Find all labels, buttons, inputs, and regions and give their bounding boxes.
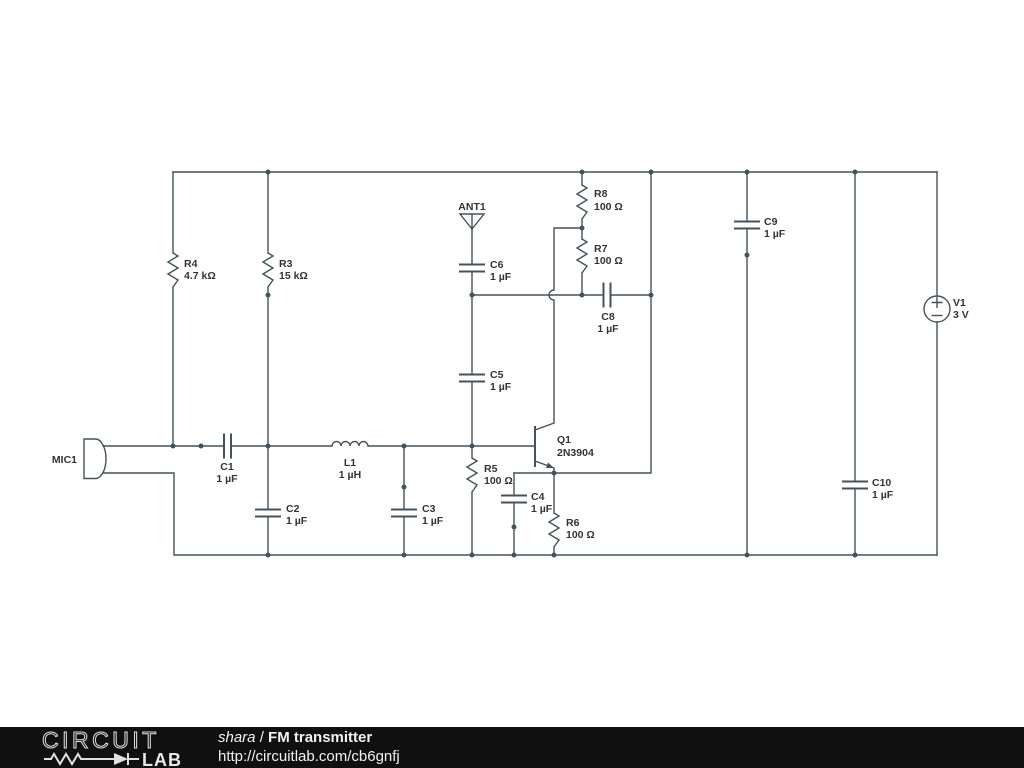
capacitor-plates <box>604 283 611 308</box>
wire-bottom-rail-and-mic-negative <box>103 473 937 555</box>
component-c9-capacitor[interactable]: C9 1 µF <box>734 216 786 240</box>
transistor-emitter-arrow <box>546 463 554 469</box>
wires <box>103 172 937 555</box>
component-r7-resistor[interactable]: R7 100 Ω <box>577 239 623 273</box>
resistor-symbol <box>549 513 559 547</box>
capacitor-plates <box>842 482 868 489</box>
capacitor-plates <box>391 510 417 517</box>
resistor-symbol <box>577 239 587 273</box>
component-l1-inductor[interactable]: L1 1 µH <box>332 442 368 482</box>
circuitlab-schematic-page: MIC1 R4 4.7 kΩ R3 15 kΩ C1 1 µF C2 1 µF … <box>0 0 1024 768</box>
capacitor-plates <box>459 265 485 272</box>
component-value-label: 4.7 kΩ <box>184 270 216 282</box>
component-c5-capacitor[interactable]: C5 1 µF <box>459 369 512 393</box>
component-ref-label: C8 <box>601 311 615 323</box>
capacitor-plates <box>459 375 485 382</box>
component-r5-resistor[interactable]: R5 100 Ω <box>467 458 513 492</box>
component-c4-capacitor[interactable]: C4 1 µF <box>501 491 553 515</box>
component-value-label: 1 µF <box>490 271 512 283</box>
component-value-label: 1 µF <box>490 381 512 393</box>
byline-divider: / <box>256 729 269 746</box>
capacitor-plates <box>501 496 527 503</box>
inductor-symbol <box>332 442 368 447</box>
resistor-symbol <box>577 185 587 219</box>
logo-lab-text: LAB <box>142 750 182 768</box>
capacitor-plates <box>224 434 231 459</box>
component-c2-capacitor[interactable]: C2 1 µF <box>255 503 308 527</box>
component-ref-label: R8 <box>594 188 608 200</box>
component-value-label: 1 µF <box>422 515 444 527</box>
resistor-symbol <box>168 253 178 287</box>
microphone-symbol <box>84 439 106 479</box>
resistor-symbol <box>467 458 477 492</box>
component-ant1-antenna[interactable]: ANT1 <box>458 201 486 229</box>
component-c3-capacitor[interactable]: C3 1 µF <box>391 503 444 527</box>
component-ref-label: C4 <box>531 491 545 503</box>
component-c10-capacitor[interactable]: C10 1 µF <box>842 477 894 501</box>
component-r8-resistor[interactable]: R8 100 Ω <box>577 185 623 219</box>
component-value-label: 100 Ω <box>566 529 595 541</box>
component-ref-label: R4 <box>184 258 198 270</box>
component-r3-resistor[interactable]: R3 15 kΩ <box>263 253 308 287</box>
component-ref-label: C1 <box>220 461 234 473</box>
schematic-title: FM transmitter <box>268 729 372 746</box>
wire-collector-link-with-hop <box>535 228 582 430</box>
component-ref-label: R3 <box>279 258 293 270</box>
logo-resistor-diode-icon <box>44 753 139 765</box>
component-value-label: 1 µH <box>339 469 361 481</box>
component-c1-capacitor[interactable]: C1 1 µF <box>216 434 238 486</box>
component-ref-label: R6 <box>566 517 580 529</box>
author-name: shara <box>218 729 256 746</box>
capacitor-plates <box>255 510 281 517</box>
component-value-label: 1 µF <box>216 473 238 485</box>
footer-text-block: shara / FM transmitter http://circuitlab… <box>218 729 400 766</box>
component-ref-label: C9 <box>764 216 778 228</box>
component-r4-resistor[interactable]: R4 4.7 kΩ <box>168 253 216 287</box>
component-value-label: 100 Ω <box>594 255 623 267</box>
schematic-canvas: MIC1 R4 4.7 kΩ R3 15 kΩ C1 1 µF C2 1 µF … <box>0 0 1024 727</box>
component-ref-label: C2 <box>286 503 300 515</box>
component-value-label: 100 Ω <box>484 475 513 487</box>
component-ref-label: C5 <box>490 369 504 381</box>
capacitor-plates <box>734 222 760 229</box>
component-ref-label: R7 <box>594 243 608 255</box>
component-ref-label: R5 <box>484 463 498 475</box>
plus-sign <box>932 297 943 308</box>
component-value-label: 1 µF <box>286 515 308 527</box>
component-q1-npn-transistor[interactable]: Q1 2N3904 <box>535 426 594 473</box>
component-value-label: 1 µF <box>597 323 619 335</box>
resistor-symbol <box>263 253 273 287</box>
component-ref-label: C3 <box>422 503 436 515</box>
component-ref-label: MIC1 <box>52 454 77 466</box>
component-value-label: 1 µF <box>872 489 894 501</box>
component-value-label: 1 µF <box>531 503 553 515</box>
schematic-url: http://circuitlab.com/cb6gnfj <box>218 748 400 766</box>
component-c6-capacitor[interactable]: C6 1 µF <box>459 259 512 283</box>
component-ref-label: ANT1 <box>458 201 486 213</box>
component-ref-label: L1 <box>344 457 356 469</box>
component-ref-label: Q1 <box>557 434 571 446</box>
component-value-label: 2N3904 <box>557 447 594 459</box>
component-value-label: 100 Ω <box>594 201 623 213</box>
component-value-label: 1 µF <box>764 228 786 240</box>
circuitlab-logo: CIRCUIT LAB <box>42 728 204 768</box>
antenna-symbol <box>460 214 484 229</box>
component-c8-capacitor[interactable]: C8 1 µF <box>597 283 619 336</box>
component-value-label: 15 kΩ <box>279 270 308 282</box>
component-r6-resistor[interactable]: R6 100 Ω <box>549 513 595 547</box>
component-ref-label: V1 <box>953 297 966 309</box>
component-ref-label: C10 <box>872 477 891 489</box>
schematic-byline: shara / FM transmitter <box>218 729 400 747</box>
component-ref-label: C6 <box>490 259 504 271</box>
component-value-label: 3 V <box>953 309 969 321</box>
component-mic1-microphone[interactable]: MIC1 <box>52 439 106 479</box>
footer-bar: CIRCUIT LAB shara / FM transmitter http:… <box>0 727 1024 768</box>
component-v1-voltage-source[interactable]: V1 3 V <box>924 296 969 322</box>
